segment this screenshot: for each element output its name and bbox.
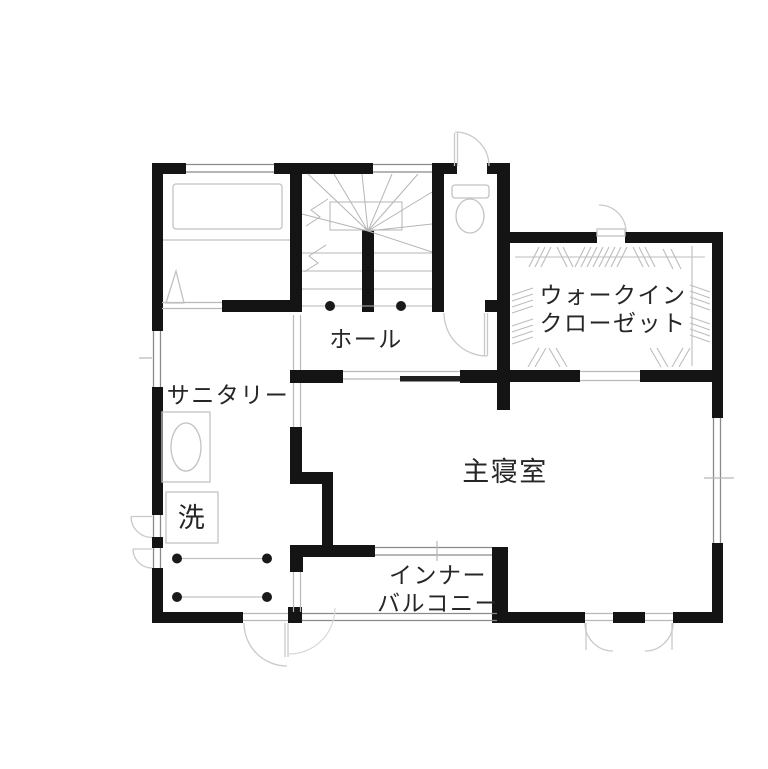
- room-labels: ウォークイン クローゼット ホール サニタリー 洗 主寝室 インナー バルコニー: [167, 283, 687, 617]
- toilet-hall-door: [444, 313, 488, 356]
- left-casement-window-upper: [131, 517, 152, 538]
- toilet-tank: [452, 185, 489, 198]
- label-master-bedroom: 主寝室: [462, 457, 548, 488]
- label-walk-in-closet-line2: クローゼット: [540, 311, 687, 337]
- bedroom-terrace-door-left: [585, 614, 613, 652]
- floor-plan-canvas: ウォークイン クローゼット ホール サニタリー 洗 主寝室 インナー バルコニー: [0, 0, 768, 769]
- bedroom-sliding-door-leaf: [400, 376, 460, 382]
- toilet: [452, 185, 489, 233]
- label-laundry: 洗: [178, 503, 207, 534]
- label-hall: ホール: [329, 327, 403, 353]
- toilet-top-door: [455, 132, 490, 166]
- label-inner-balcony-line1: インナー: [389, 563, 487, 589]
- bathtub: [173, 184, 282, 229]
- washbasin: [171, 423, 201, 471]
- left-casement-window-lower: [133, 549, 152, 568]
- bathroom: [163, 184, 290, 303]
- stair-up-arrow: [306, 199, 328, 226]
- bedroom-terrace-door-right: [645, 614, 673, 652]
- label-sanitary: サニタリー: [167, 383, 290, 409]
- label-inner-balcony-line2: バルコニー: [377, 591, 499, 617]
- drying-poles: [177, 559, 267, 598]
- label-walk-in-closet-line1: ウォークイン: [540, 283, 687, 309]
- walkin-closet-door: [597, 205, 626, 236]
- toilet-bowl: [456, 199, 484, 233]
- floor-plan-page: ウォークイン クローゼット ホール サニタリー 洗 主寝室 インナー バルコニー: [0, 0, 768, 769]
- stair-up-arrow: [304, 245, 326, 272]
- handrail-post: [325, 301, 335, 311]
- handrail-post: [396, 301, 406, 311]
- bathroom-folding-door: [166, 271, 184, 303]
